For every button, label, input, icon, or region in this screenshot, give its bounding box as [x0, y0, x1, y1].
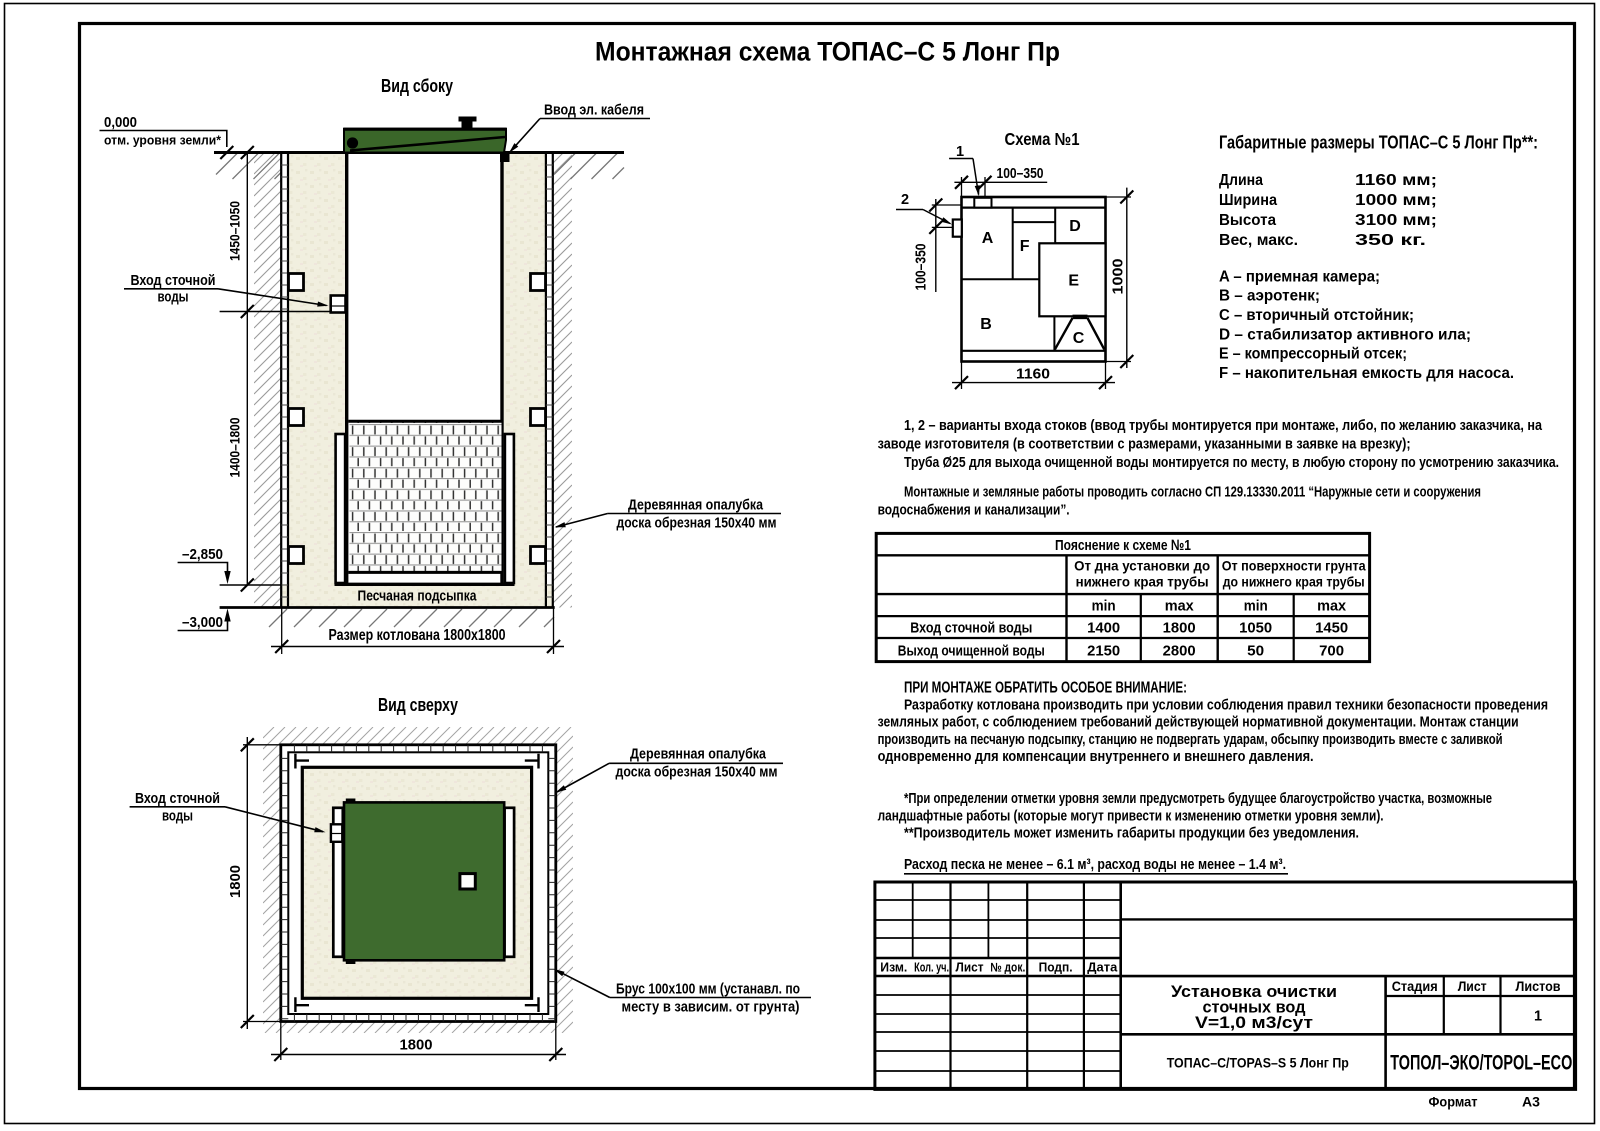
- svg-text:одновременно для компенсации в: одновременно для компенсации внутреннего…: [878, 748, 1314, 765]
- svg-text:Длина: Длина: [1219, 172, 1263, 189]
- svg-text:Дата: Дата: [1087, 961, 1118, 975]
- svg-text:Вход сточной: Вход сточной: [131, 273, 216, 289]
- svg-text:D: D: [1069, 218, 1081, 235]
- svg-text:Монтажные и земляные работы пр: Монтажные и земляные работы проводить со…: [904, 483, 1481, 500]
- svg-text:2150: 2150: [1087, 643, 1120, 659]
- svg-text:Вид сверху: Вид сверху: [378, 694, 459, 715]
- svg-text:воды: воды: [162, 809, 193, 825]
- svg-text:Габаритные размеры ТОПАС–С 5 Л: Габаритные размеры ТОПАС–С 5 Лонг Пр**:: [1219, 133, 1538, 153]
- svg-text:Высота: Высота: [1219, 212, 1276, 229]
- svg-text:Лист: Лист: [1458, 979, 1487, 994]
- svg-text:Лист: Лист: [956, 961, 984, 975]
- svg-text:отм. уровня земли*: отм. уровня земли*: [104, 133, 222, 148]
- svg-text:1000: 1000: [1111, 259, 1127, 295]
- svg-text:ТОПАС–С/TOPAS–S 5 Лонг Пр: ТОПАС–С/TOPAS–S 5 Лонг Пр: [1167, 1055, 1349, 1071]
- svg-text:1000 мм;: 1000 мм;: [1355, 192, 1437, 209]
- svg-text:Размер котлована 1800х1800: Размер котлована 1800х1800: [329, 627, 506, 644]
- svg-text:Подп.: Подп.: [1039, 961, 1073, 975]
- svg-text:C – вторичный отстойник;: C – вторичный отстойник;: [1219, 307, 1414, 324]
- svg-text:1800: 1800: [228, 865, 244, 898]
- svg-text:Стадия: Стадия: [1392, 979, 1438, 994]
- svg-text:2800: 2800: [1163, 643, 1196, 659]
- svg-text:заводе изготовителя (в соответ: заводе изготовителя (в соответствии с ра…: [878, 435, 1411, 452]
- svg-text:F: F: [1020, 238, 1030, 255]
- svg-text:Расход песка не менее – 6.1 м³: Расход песка не менее – 6.1 м³, расход в…: [904, 856, 1286, 873]
- svg-text:месту в зависим. от грунта): месту в зависим. от грунта): [622, 1000, 800, 1016]
- svg-text:Деревянная опалубка: Деревянная опалубка: [628, 498, 764, 514]
- svg-text:Кол. уч.: Кол. уч.: [914, 961, 949, 975]
- svg-text:Труба Ø25 для выхода очищенной: Труба Ø25 для выхода очищенной воды монт…: [904, 454, 1559, 471]
- svg-text:Ввод эл. кабеля: Ввод эл. кабеля: [544, 103, 644, 119]
- svg-text:Изм.: Изм.: [880, 961, 907, 975]
- svg-text:до нижнего края трубы: до нижнего края трубы: [1223, 574, 1365, 590]
- svg-text:производить на песчаную подсып: производить на песчаную подсыпку, станци…: [878, 731, 1503, 748]
- svg-text:50: 50: [1247, 643, 1264, 659]
- svg-text:Ширина: Ширина: [1219, 192, 1277, 209]
- svg-text:доска обрезная 150х40 мм: доска обрезная 150х40 мм: [617, 516, 777, 532]
- svg-text:ТОПОЛ–ЭКО/TOPOL–ECO: ТОПОЛ–ЭКО/TOPOL–ECO: [1390, 1052, 1572, 1075]
- svg-text:1160 мм;: 1160 мм;: [1355, 172, 1437, 189]
- svg-text:100–350: 100–350: [914, 244, 930, 291]
- svg-text:нижнего края трубы: нижнего края трубы: [1076, 574, 1209, 590]
- svg-text:A – приемная камера;: A – приемная камера;: [1219, 268, 1380, 285]
- svg-text:1: 1: [1534, 1009, 1542, 1025]
- svg-text:От дна установки до: От дна установки до: [1074, 558, 1210, 574]
- svg-text:max: max: [1165, 599, 1194, 615]
- svg-text:700: 700: [1319, 643, 1344, 659]
- svg-text:А3: А3: [1522, 1095, 1541, 1110]
- svg-text:Вид сбоку: Вид сбоку: [381, 75, 454, 96]
- svg-text:1400–1800: 1400–1800: [227, 417, 243, 477]
- svg-text:Схема №1: Схема №1: [1005, 129, 1080, 149]
- svg-text:Разработку котлована производи: Разработку котлована производить при усл…: [904, 697, 1548, 714]
- svg-text:100–350: 100–350: [997, 166, 1044, 182]
- svg-text:Листов: Листов: [1516, 979, 1561, 994]
- svg-text:E: E: [1068, 273, 1079, 290]
- svg-text:*При определении отметки уровн: *При определении отметки уровня земли пр…: [904, 790, 1492, 807]
- svg-text:1: 1: [956, 144, 964, 160]
- svg-text:–3,000: –3,000: [182, 615, 223, 631]
- svg-text:ландшафтные работы (которые мо: ландшафтные работы (которые могут привес…: [878, 808, 1384, 825]
- svg-text:**Производитель может изменить: **Производитель может изменить габариты …: [904, 825, 1359, 842]
- svg-text:Вес, макс.: Вес, макс.: [1219, 232, 1298, 249]
- svg-text:Формат: Формат: [1429, 1095, 1478, 1110]
- svg-text:min: min: [1092, 599, 1116, 615]
- svg-text:B: B: [980, 316, 992, 333]
- svg-text:min: min: [1244, 599, 1268, 615]
- svg-text:№ док.: № док.: [990, 961, 1025, 975]
- svg-text:ПРИ МОНТАЖЕ ОБРАТИТЬ ОСОБОЕ ВН: ПРИ МОНТАЖЕ ОБРАТИТЬ ОСОБОЕ ВНИМАНИЕ:: [904, 680, 1187, 697]
- svg-text:Пояснение к схеме №1: Пояснение к схеме №1: [1055, 537, 1191, 554]
- svg-text:Вход сточной воды: Вход сточной воды: [910, 620, 1032, 636]
- svg-text:2: 2: [901, 192, 909, 208]
- svg-text:Монтажная схема ТОПАС–С 5 Лонг: Монтажная схема ТОПАС–С 5 Лонг Пр: [595, 37, 1060, 67]
- svg-text:Выход очищенной воды: Выход очищенной воды: [898, 643, 1045, 659]
- svg-text:воды: воды: [158, 290, 189, 306]
- svg-text:1400: 1400: [1087, 620, 1120, 636]
- svg-text:B – аэротенк;: B – аэротенк;: [1219, 288, 1320, 305]
- svg-text:1800: 1800: [1163, 620, 1196, 636]
- svg-text:Вход сточной: Вход сточной: [135, 791, 220, 807]
- svg-text:A: A: [982, 230, 994, 247]
- svg-text:C: C: [1073, 330, 1085, 347]
- svg-text:0,000: 0,000: [104, 115, 137, 131]
- svg-text:1, 2 – варианты входа стоков: 1, 2 – варианты входа стоков (ввод трубы…: [904, 417, 1543, 434]
- svg-text:водоснабжения и канализации”.: водоснабжения и канализации”.: [878, 501, 1070, 518]
- svg-text:1800: 1800: [400, 1038, 433, 1054]
- svg-text:E – компрессорный отсек;: E – компрессорный отсек;: [1219, 346, 1407, 363]
- svg-text:От поверхности грунта: От поверхности грунта: [1222, 558, 1366, 574]
- svg-text:1450–1050: 1450–1050: [227, 201, 243, 261]
- svg-text:1160: 1160: [1016, 367, 1050, 383]
- svg-text:–2,850: –2,850: [182, 547, 223, 563]
- svg-text:350 кг.: 350 кг.: [1355, 232, 1426, 249]
- svg-text:V=1,0 м3/сут: V=1,0 м3/сут: [1195, 1014, 1313, 1032]
- svg-text:1050: 1050: [1239, 620, 1272, 636]
- svg-text:D – стабилизатор активного ила: D – стабилизатор активного ила;: [1219, 326, 1471, 343]
- svg-text:Деревянная опалубка: Деревянная опалубка: [630, 747, 767, 763]
- svg-text:1450: 1450: [1315, 620, 1348, 636]
- svg-text:3100 мм;: 3100 мм;: [1355, 212, 1437, 229]
- svg-text:F – накопительная емкость для: F – накопительная емкость для насоса.: [1219, 365, 1514, 382]
- svg-text:Брус 100х100 мм (устанавл. по: Брус 100х100 мм (устанавл. по: [616, 982, 800, 998]
- svg-text:Песчаная подсыпка: Песчаная подсыпка: [358, 589, 478, 605]
- svg-text:max: max: [1317, 599, 1346, 615]
- svg-text:земляных работ, с соблюдением: земляных работ, с соблюдением требований…: [878, 714, 1519, 731]
- svg-text:доска обрезная 150х40 мм: доска обрезная 150х40 мм: [616, 765, 778, 781]
